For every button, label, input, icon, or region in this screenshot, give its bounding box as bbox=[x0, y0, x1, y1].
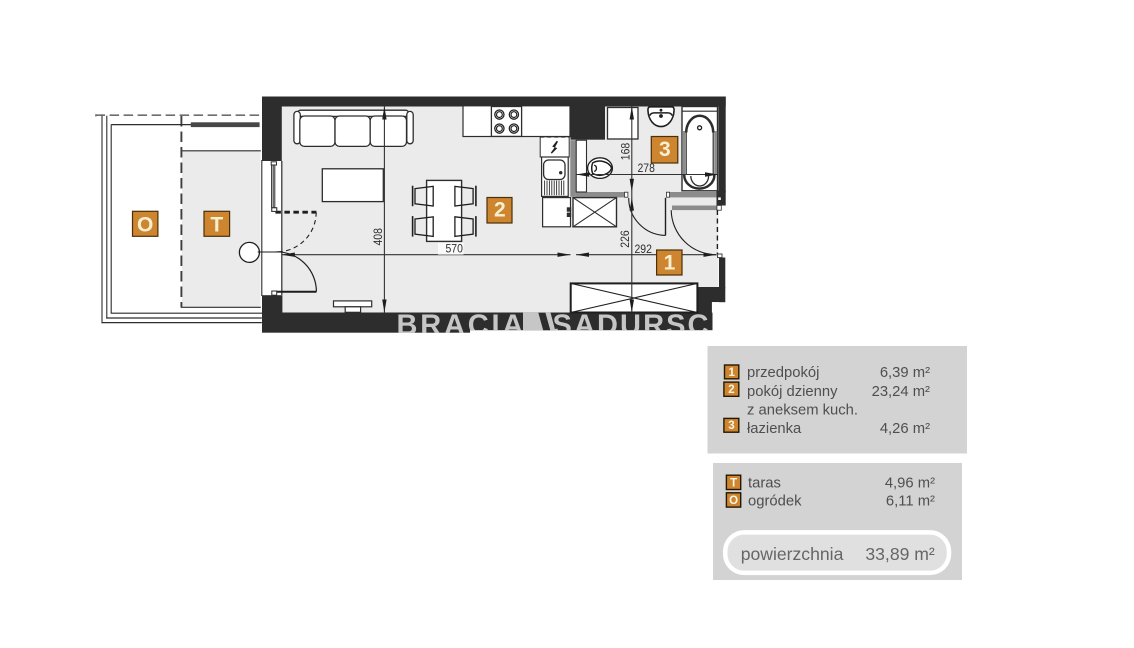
svg-text:292: 292 bbox=[635, 242, 652, 256]
svg-text:taras: taras bbox=[748, 476, 781, 492]
svg-text:przedpokój: przedpokój bbox=[747, 365, 819, 381]
svg-text:pokój dzienny: pokój dzienny bbox=[747, 384, 838, 400]
svg-text:6,39 m²: 6,39 m² bbox=[880, 365, 930, 381]
svg-text:4,96 m²: 4,96 m² bbox=[885, 476, 935, 492]
svg-text:z aneksem kuch.: z aneksem kuch. bbox=[747, 403, 858, 419]
svg-text:powierzchnia: powierzchnia bbox=[741, 544, 844, 564]
svg-text:3: 3 bbox=[659, 138, 671, 161]
svg-text:T: T bbox=[730, 477, 737, 489]
svg-text:570: 570 bbox=[446, 242, 464, 256]
svg-text:1: 1 bbox=[664, 252, 676, 275]
svg-text:33,89 m²: 33,89 m² bbox=[865, 544, 935, 564]
svg-text:łazienka: łazienka bbox=[747, 421, 802, 437]
svg-text:2: 2 bbox=[494, 199, 506, 222]
svg-text:ogródek: ogródek bbox=[748, 494, 802, 510]
svg-text:23,24 m²: 23,24 m² bbox=[872, 384, 930, 400]
svg-text:1: 1 bbox=[728, 367, 735, 379]
svg-text:4,26 m²: 4,26 m² bbox=[880, 421, 930, 437]
svg-text:6,11 m²: 6,11 m² bbox=[886, 494, 935, 510]
svg-text:O: O bbox=[729, 495, 738, 507]
svg-text:408: 408 bbox=[371, 228, 385, 246]
svg-text:2: 2 bbox=[728, 384, 734, 396]
svg-text:O: O bbox=[137, 214, 153, 237]
svg-text:3: 3 bbox=[728, 420, 734, 432]
svg-text:168: 168 bbox=[619, 142, 633, 160]
svg-text:T: T bbox=[210, 214, 223, 237]
svg-text:226: 226 bbox=[618, 230, 632, 248]
